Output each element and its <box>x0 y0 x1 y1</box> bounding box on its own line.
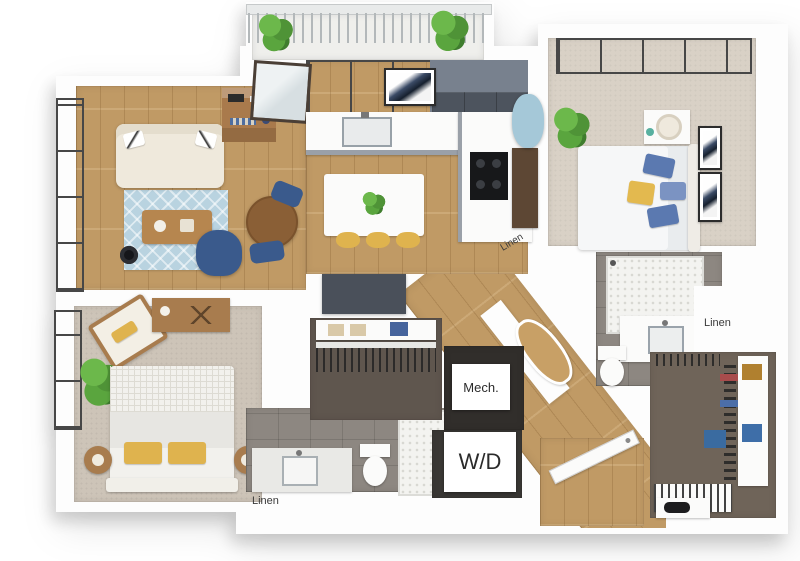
bar-stool <box>366 232 390 248</box>
island-plant-icon <box>360 190 388 216</box>
vanity-sink <box>648 326 684 354</box>
faucet-icon <box>296 450 302 456</box>
apartment-unit: Linen <box>0 0 800 561</box>
closet-shelf <box>316 320 436 340</box>
wd-sign: W/D <box>444 432 516 492</box>
plant-pot-icon <box>646 128 654 136</box>
balcony-plant-icon <box>428 6 472 54</box>
x-decor-icon <box>190 306 212 324</box>
storage-bin-icon <box>742 424 762 442</box>
mech-label: Mech. <box>463 380 498 395</box>
floor-lamp-icon <box>120 246 138 264</box>
garment-icon <box>720 374 738 381</box>
master-framed-art <box>698 172 722 222</box>
burner-icon <box>492 180 501 189</box>
book-icon <box>180 219 194 232</box>
vase-icon <box>160 306 170 316</box>
hanging-clothes <box>316 348 436 372</box>
master-framed-art <box>698 126 722 170</box>
folded-towels-icon <box>390 322 408 336</box>
master-corner-window <box>556 38 752 74</box>
master-bed <box>578 146 694 250</box>
garment-icon <box>720 400 738 407</box>
folded-towels-icon <box>350 324 366 336</box>
door-handle-icon <box>625 437 632 444</box>
table-lamp-icon <box>92 454 104 466</box>
vanity-sink <box>282 456 318 486</box>
bar-stool <box>396 232 420 248</box>
yellow-pillow <box>110 320 138 344</box>
swivel-armchair <box>196 230 242 276</box>
headboard <box>106 478 238 492</box>
blue-pillow <box>642 153 676 179</box>
balcony-plant-icon <box>256 10 296 54</box>
toilet <box>363 456 387 486</box>
blue-pillow <box>660 182 686 200</box>
books-icon <box>228 94 244 102</box>
floor-plan-render: Linen <box>0 0 800 561</box>
master-linen-label: Linen <box>704 318 731 329</box>
art-content <box>703 131 717 165</box>
storage-bin-icon <box>742 364 762 380</box>
media-console <box>152 298 230 332</box>
yellow-pillow <box>124 442 162 464</box>
living-room-window <box>56 98 84 292</box>
kitchen-counter <box>306 112 460 155</box>
folded-towels-icon <box>328 324 344 336</box>
storage-bin-icon <box>704 430 726 448</box>
side-table <box>84 446 112 474</box>
faucet-icon <box>662 320 668 326</box>
burner-icon <box>476 159 485 168</box>
wd-label: W/D <box>459 449 502 475</box>
art-content <box>389 73 431 101</box>
sofa <box>116 124 224 188</box>
yellow-pillow <box>168 442 206 464</box>
tall-cabinet <box>512 148 538 228</box>
table-lamp-icon <box>656 114 682 140</box>
burner-icon <box>492 159 501 168</box>
faucet-icon <box>361 112 369 118</box>
accent-chair <box>512 94 544 148</box>
entry-console <box>656 498 710 518</box>
bag-icon <box>664 502 690 513</box>
master-nightstand <box>644 110 690 144</box>
cooktop <box>470 152 508 200</box>
cabinet-top <box>322 274 406 314</box>
balcony-door <box>250 60 312 124</box>
bedroom2-bed <box>110 366 234 490</box>
sofa-pillow <box>194 130 217 149</box>
patterned-duvet <box>110 366 234 412</box>
art-content <box>703 177 717 217</box>
master-plant-icon <box>552 102 592 152</box>
kitchen-sink <box>342 117 392 147</box>
bar-stool <box>336 232 360 248</box>
bedroom2-window <box>54 310 82 430</box>
burner-icon <box>476 180 485 189</box>
shower-head-icon <box>610 260 616 266</box>
bath-linen-label: Linen <box>252 496 279 507</box>
blue-pillow <box>646 204 679 229</box>
closet-shelving <box>738 356 768 486</box>
master-toilet <box>600 358 624 386</box>
mech-sign: Mech. <box>452 364 510 410</box>
sofa-pillow <box>122 130 145 149</box>
yellow-pillow <box>627 180 656 205</box>
bathroom2-vanity <box>252 448 352 492</box>
tray-icon <box>154 220 166 232</box>
kitchen-framed-art <box>384 68 436 106</box>
hanging-clothes <box>656 354 720 366</box>
